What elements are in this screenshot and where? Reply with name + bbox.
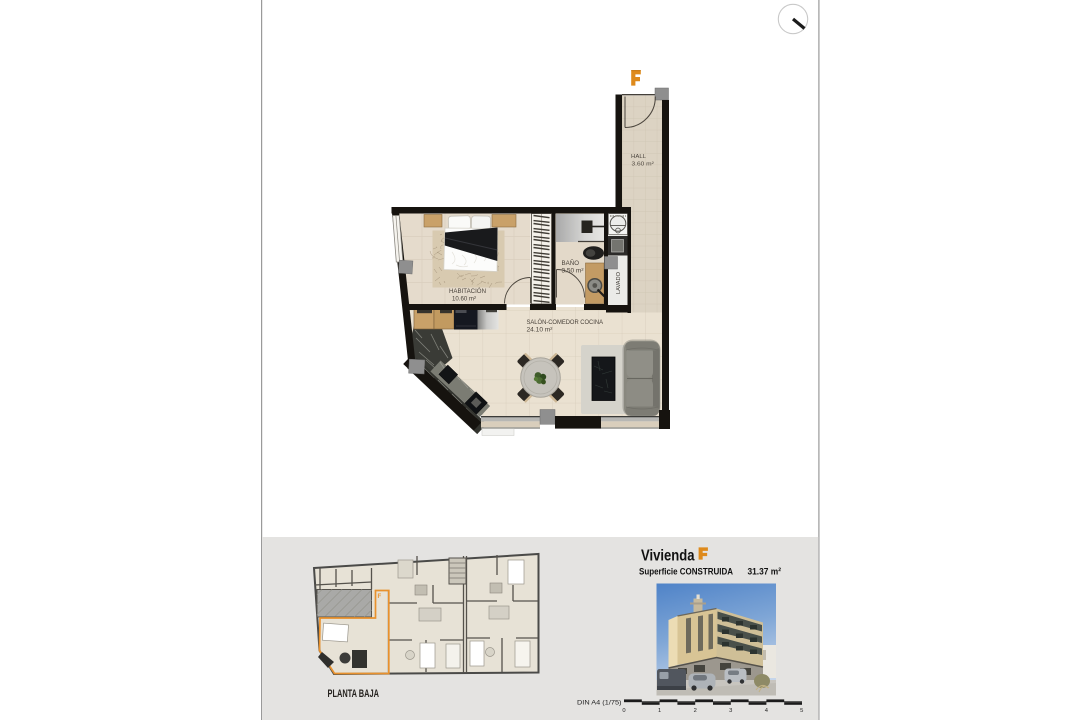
svg-text:BAÑO: BAÑO — [562, 260, 580, 267]
svg-text:LAVADO: LAVADO — [616, 271, 622, 294]
svg-text:31.37 m²: 31.37 m² — [748, 567, 782, 577]
svg-text:Vivienda: Vivienda — [641, 548, 695, 565]
svg-text:PLANTA BAJA: PLANTA BAJA — [328, 688, 380, 700]
svg-text:3.60 m²: 3.60 m² — [632, 162, 654, 168]
svg-text:3.50 m²: 3.50 m² — [562, 269, 584, 275]
svg-text:3: 3 — [729, 708, 732, 714]
svg-text:2: 2 — [694, 708, 697, 714]
svg-text:10.60 m²: 10.60 m² — [452, 296, 477, 303]
svg-text:5: 5 — [800, 708, 803, 714]
svg-text:F: F — [378, 594, 382, 600]
svg-text:HABITACIÓN: HABITACIÓN — [449, 286, 486, 295]
svg-text:Superficie CONSTRUIDA: Superficie CONSTRUIDA — [639, 567, 733, 577]
svg-text:0: 0 — [622, 708, 625, 714]
svg-text:24.10 m²: 24.10 m² — [527, 327, 553, 334]
svg-text:1: 1 — [658, 708, 661, 714]
svg-text:HALL: HALL — [631, 154, 646, 160]
svg-text:DIN A4 (1/75): DIN A4 (1/75) — [577, 700, 622, 707]
svg-text:SALÓN-COMEDOR COCINA: SALÓN-COMEDOR COCINA — [527, 317, 604, 326]
